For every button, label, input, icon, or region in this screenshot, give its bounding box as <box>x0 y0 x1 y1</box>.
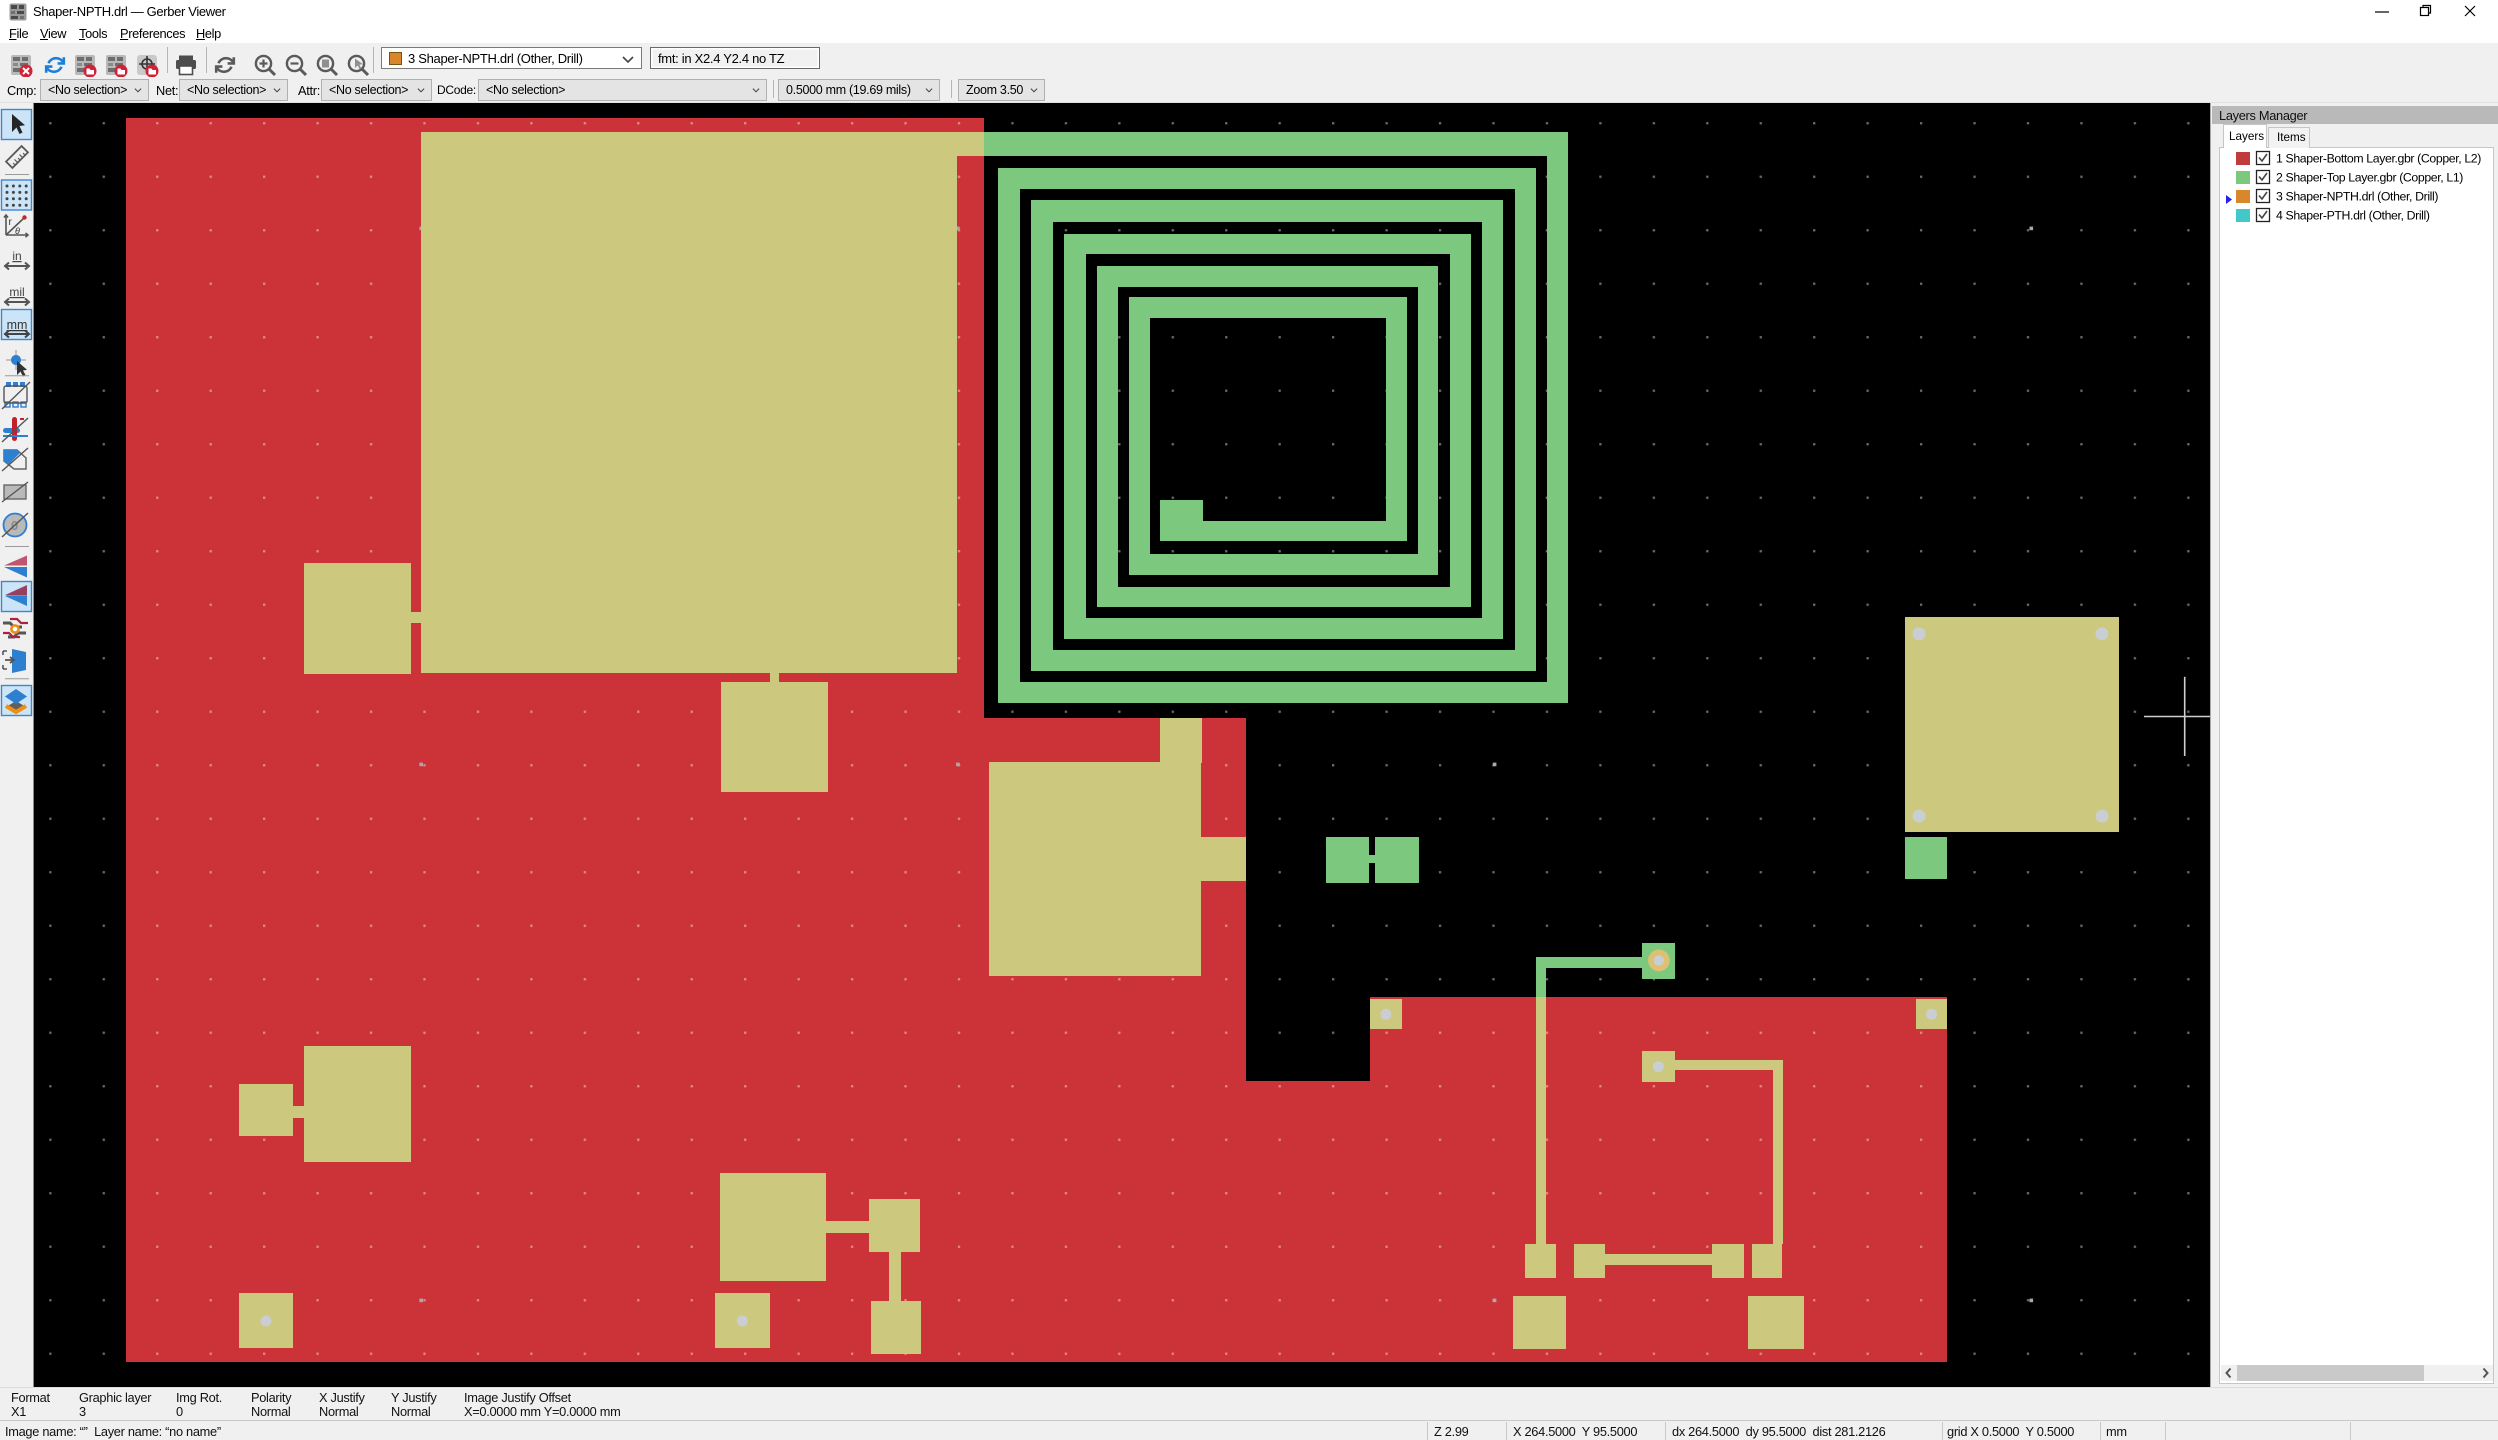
svg-text:1 Shaper-Bottom Layer.gbr (Cop: 1 Shaper-Bottom Layer.gbr (Copper, L2) <box>2276 152 2481 166</box>
svg-text:r: r <box>9 217 13 228</box>
svg-text:2 Shaper-Top Layer.gbr (Copper: 2 Shaper-Top Layer.gbr (Copper, L1) <box>2276 171 2463 185</box>
svg-text:θ: θ <box>15 226 20 236</box>
svg-text:4 Shaper-PTH.drl (Other, Drill: 4 Shaper-PTH.drl (Other, Drill) <box>2276 209 2430 223</box>
svg-text:mil: mil <box>9 285 24 299</box>
svg-text:in: in <box>12 249 21 263</box>
svg-text:mm: mm <box>7 318 28 332</box>
svg-text:3 Shaper-NPTH.drl (Other, Dril: 3 Shaper-NPTH.drl (Other, Drill) <box>2276 190 2438 204</box>
